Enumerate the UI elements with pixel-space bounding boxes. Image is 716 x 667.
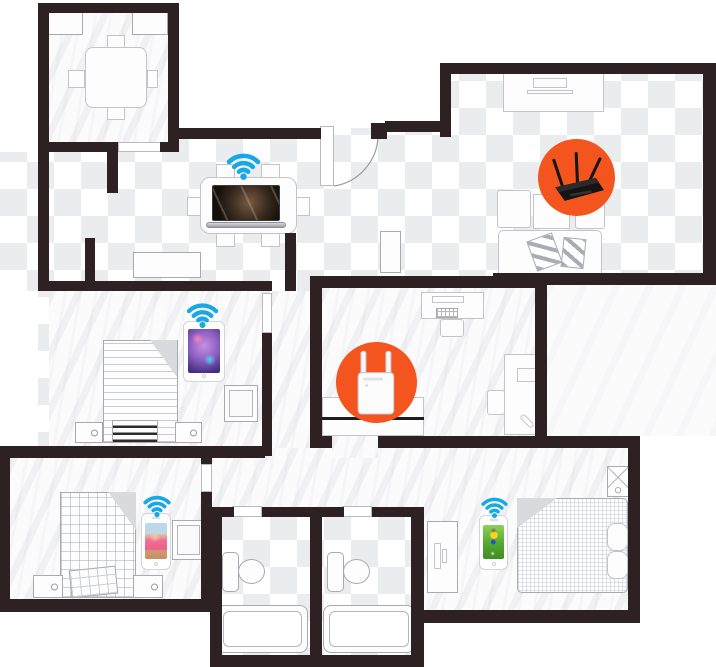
wall <box>535 276 547 448</box>
chair <box>296 197 310 216</box>
folded-blanket <box>69 566 119 599</box>
door-opening <box>201 464 212 492</box>
wifi-icon <box>139 492 175 518</box>
door-opening <box>118 142 162 152</box>
home-button <box>154 562 158 566</box>
sideboard <box>133 252 201 278</box>
margin <box>640 435 716 667</box>
dining-chair <box>68 70 85 88</box>
home-button <box>202 374 206 378</box>
dresser <box>224 385 258 422</box>
dining-chair <box>107 107 125 120</box>
wall <box>0 446 10 612</box>
margin <box>0 612 210 667</box>
margin <box>0 291 38 447</box>
toilet-bowl <box>238 559 265 584</box>
wall <box>628 438 640 623</box>
nightstand <box>75 422 103 443</box>
tablet-screen-game <box>188 329 220 373</box>
corridor-floor <box>272 291 310 448</box>
paper <box>517 368 537 382</box>
monitor <box>432 296 464 303</box>
wall <box>107 152 118 193</box>
wall <box>38 3 179 13</box>
door-opening <box>232 506 262 517</box>
toilet-tank <box>327 552 344 592</box>
sofa-pillow <box>560 237 586 269</box>
blanket-roll <box>607 523 628 551</box>
desk-chair <box>440 319 464 337</box>
laptop-screen-movie <box>212 185 279 221</box>
margin <box>0 0 38 152</box>
wall <box>179 128 321 139</box>
tv-stand <box>527 90 573 94</box>
blanket-roll <box>607 551 628 579</box>
wall <box>168 3 179 150</box>
keyboard <box>436 308 458 318</box>
phone-screen-soccer <box>483 525 504 559</box>
wall <box>160 142 179 152</box>
bathtub <box>217 605 308 653</box>
wall <box>85 238 95 282</box>
router-icon <box>543 144 611 212</box>
armchair <box>497 190 531 228</box>
wall <box>310 276 547 288</box>
extender-icon <box>341 347 412 418</box>
margin <box>179 0 440 128</box>
extender-hotspot <box>336 342 417 423</box>
toilet-bowl <box>343 559 370 584</box>
margin <box>440 0 716 63</box>
wall <box>440 63 451 137</box>
laptop-base <box>206 222 286 228</box>
striped-blanket <box>112 420 158 443</box>
bathtub <box>323 605 415 653</box>
laptop <box>206 183 286 228</box>
wall <box>378 436 640 448</box>
chair <box>216 233 235 247</box>
floor-plan <box>0 0 716 667</box>
margin <box>424 623 640 667</box>
home-button <box>492 562 496 566</box>
wall <box>285 233 296 291</box>
router-hotspot <box>538 139 615 216</box>
phone-beach <box>141 513 171 570</box>
wifi-icon <box>221 149 266 181</box>
wall <box>703 63 716 285</box>
dining-chair <box>147 70 158 88</box>
wall <box>262 333 272 456</box>
wall <box>0 599 213 612</box>
dining-table <box>85 47 147 108</box>
wall <box>210 507 222 667</box>
wall <box>38 281 272 291</box>
nightstand <box>33 575 63 598</box>
chair <box>187 197 201 216</box>
corner-cabinet <box>607 466 629 497</box>
wall <box>420 610 640 623</box>
wall <box>310 507 322 667</box>
cabinet-cross-icon <box>608 467 628 496</box>
wall <box>411 507 424 667</box>
wall <box>3 446 265 458</box>
wifi-icon <box>477 494 512 519</box>
chair <box>261 233 280 247</box>
wall <box>262 507 310 517</box>
dining-cabinet <box>47 12 83 35</box>
phone-soccer <box>479 515 508 570</box>
phone-screen-beach <box>145 523 167 559</box>
dresser-tv <box>434 543 441 569</box>
wall <box>310 276 322 448</box>
wall <box>201 446 212 464</box>
balcony-floor <box>547 285 716 436</box>
tv <box>533 78 567 88</box>
chair <box>487 390 505 415</box>
hall-cabinet <box>380 231 401 273</box>
toilet-tank <box>222 552 239 592</box>
dining-cabinet <box>132 12 168 35</box>
wall <box>322 507 344 517</box>
wall <box>210 655 424 667</box>
phone-speaker <box>489 519 498 521</box>
wall <box>310 436 332 448</box>
wall <box>38 142 118 152</box>
dresser-tv-base <box>442 549 447 563</box>
tablet <box>183 321 225 382</box>
nightstand <box>133 575 163 598</box>
wifi-icon <box>181 299 224 329</box>
hallway-floor <box>332 436 378 458</box>
wall <box>440 63 716 74</box>
door-opening <box>342 506 372 517</box>
nightstand <box>175 422 202 443</box>
door-opening <box>262 293 272 333</box>
